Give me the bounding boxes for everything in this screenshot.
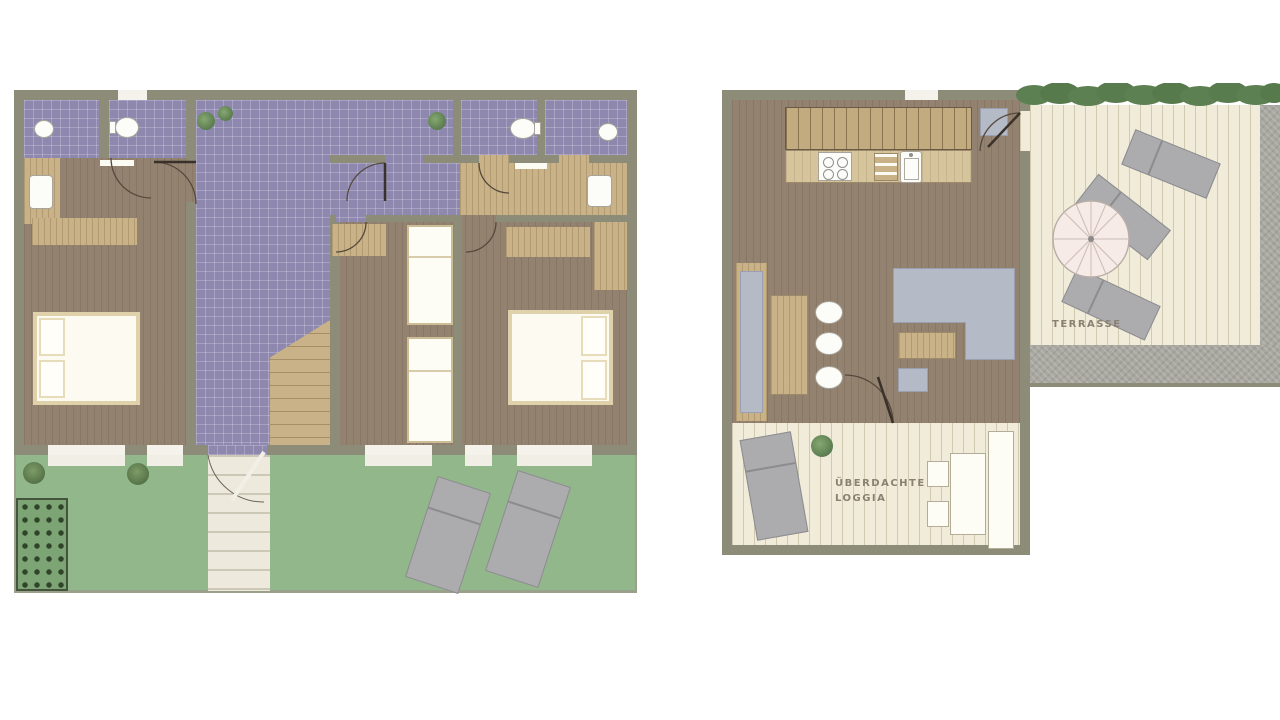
loggia-bench: [988, 431, 1014, 549]
garden-door-opening: [208, 445, 267, 455]
bunk-bed: [407, 225, 453, 325]
loggia-table: [950, 453, 986, 535]
bush: [23, 462, 45, 484]
bush: [127, 463, 149, 485]
loggia-chair: [927, 461, 949, 487]
plant: [218, 106, 233, 121]
toilet: [115, 117, 139, 138]
stone-border-right: [1260, 105, 1280, 383]
terrace-label: TERRASSE: [1052, 317, 1122, 332]
wall: [453, 100, 461, 155]
wall: [186, 202, 196, 445]
chair: [815, 332, 843, 355]
kitchen-sink: [900, 151, 922, 183]
window-opening: [365, 445, 432, 455]
door-mat: [980, 108, 1008, 136]
washbasin: [29, 175, 53, 209]
corner-sofa: [893, 268, 1015, 323]
hedge: [1016, 83, 1280, 106]
washbasin: [587, 175, 612, 207]
loggia-label: ÜBERDACHTE LOGGIA: [835, 476, 926, 506]
wall: [589, 155, 627, 163]
loggia-label-line1: ÜBERDACHTE: [835, 476, 926, 491]
towel-shelf: [515, 163, 547, 169]
window-sill: [147, 455, 183, 466]
loggia-label-line2: LOGGIA: [835, 491, 926, 506]
kitchen-cabinets: [785, 107, 972, 150]
coffee-table: [898, 332, 956, 359]
wall: [509, 155, 559, 163]
plant: [811, 435, 833, 457]
dining-table: [770, 295, 808, 395]
window-opening: [48, 445, 125, 455]
wall: [423, 155, 479, 163]
chair: [815, 366, 843, 389]
plant: [197, 112, 215, 130]
wardrobe: [506, 227, 590, 257]
window-opening: [118, 90, 147, 100]
wall: [366, 215, 460, 222]
terrace-edge-line: [1030, 383, 1280, 387]
vegetable-patch: [16, 498, 68, 591]
window-opening: [517, 445, 592, 455]
upper-floor-plan: TERRASSE: [722, 83, 1280, 557]
round-sink: [34, 120, 54, 138]
window-sill: [517, 455, 592, 466]
stone-border-bottom: [1030, 345, 1280, 383]
ottoman: [898, 368, 928, 392]
wall: [330, 155, 385, 163]
wardrobe: [332, 224, 386, 256]
floor-plan-canvas: TERRASSE: [0, 0, 1280, 720]
wardrobe: [594, 222, 627, 290]
toilet-tank: [109, 121, 116, 134]
window-opening: [905, 90, 938, 100]
wall: [496, 215, 627, 222]
garden-steps: [208, 455, 270, 591]
pillow: [581, 360, 607, 400]
window-sill: [48, 455, 125, 466]
kitchen-drawers: [874, 153, 898, 181]
wardrobe: [32, 218, 137, 245]
window-opening: [465, 445, 492, 455]
window-sill: [465, 455, 492, 466]
wall: [454, 215, 462, 445]
bunk-bed: [407, 337, 453, 443]
double-bed: [33, 312, 140, 405]
toilet-tank: [534, 122, 541, 135]
pillow: [581, 316, 607, 356]
wall: [99, 100, 109, 158]
chair: [815, 301, 843, 324]
round-sink: [598, 123, 618, 141]
terrace-door-opening: [1020, 111, 1030, 151]
towel-shelf: [100, 160, 134, 166]
window-sill: [365, 455, 432, 466]
toilet: [510, 118, 536, 139]
wall: [330, 215, 336, 222]
ground-floor-plan: [14, 90, 637, 593]
wall: [186, 100, 196, 162]
window-opening: [147, 445, 183, 455]
plant: [428, 112, 446, 130]
hob: [818, 152, 852, 181]
double-bed: [508, 310, 613, 405]
corner-sofa-chaise: [965, 322, 1015, 360]
pillow: [39, 360, 65, 398]
pillow: [39, 318, 65, 356]
dining-bench: [740, 271, 763, 413]
loggia-chair: [927, 501, 949, 527]
